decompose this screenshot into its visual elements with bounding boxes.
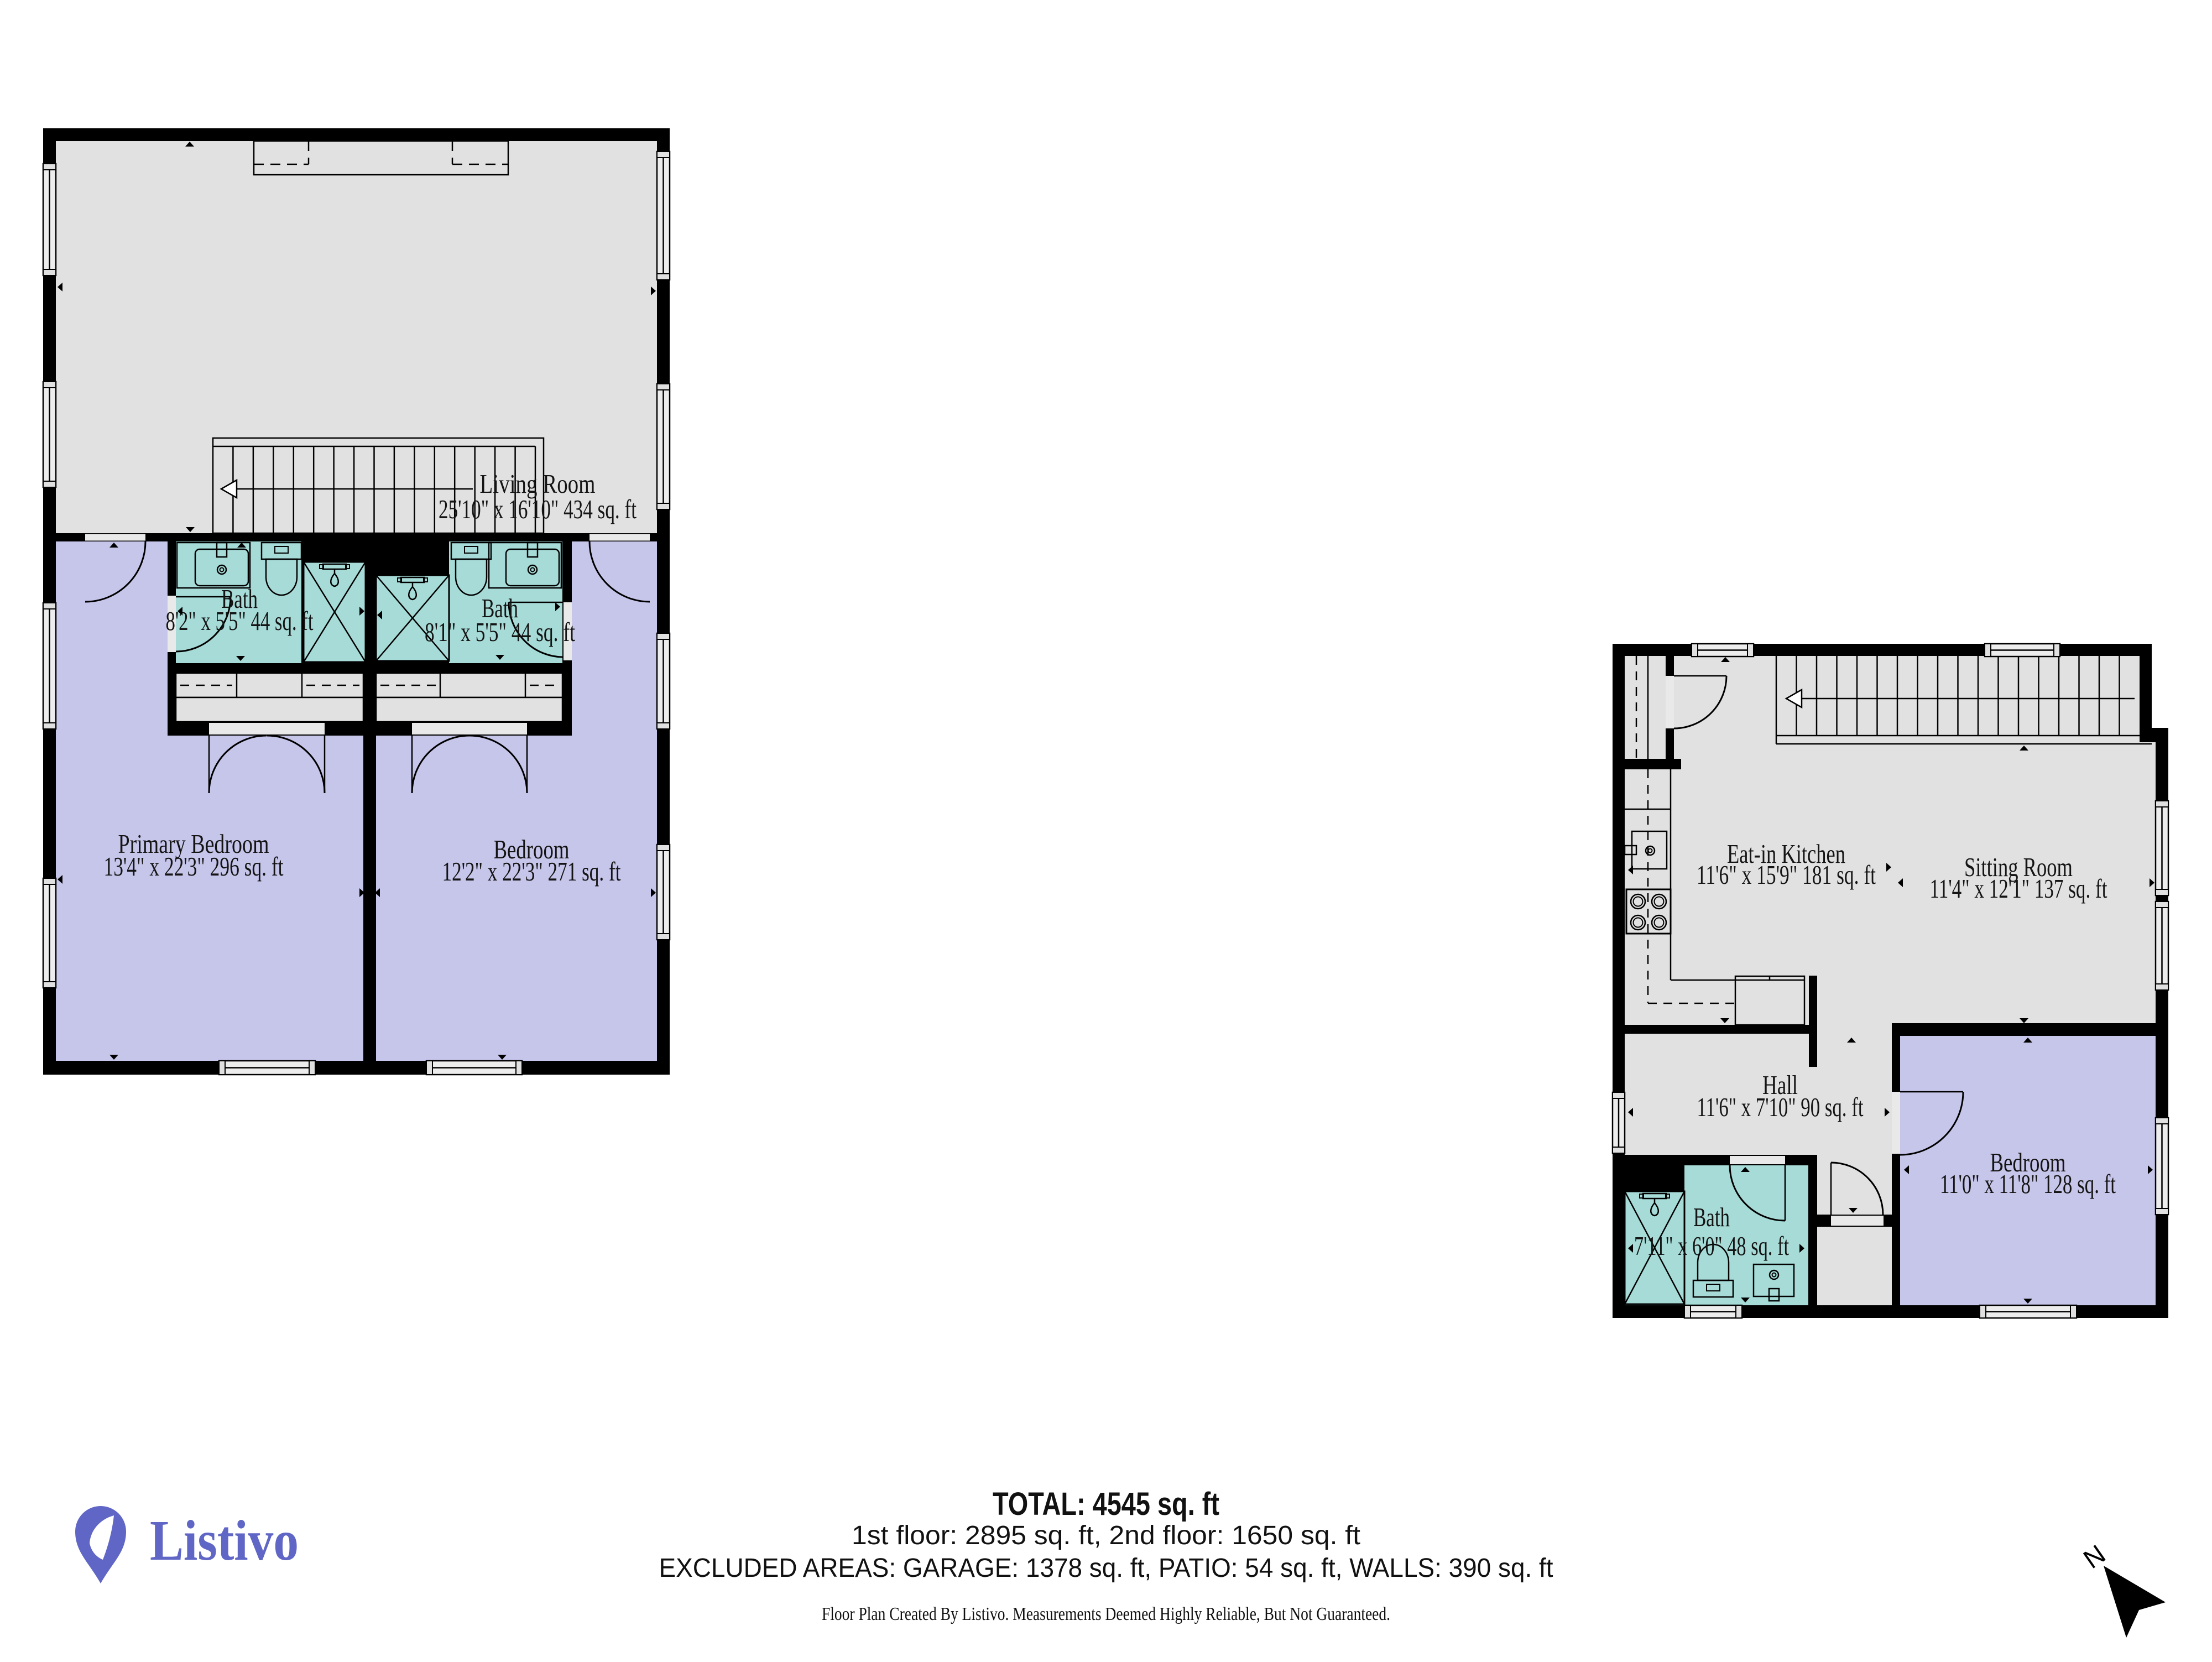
- svg-text:12'2" x 22'3" 271 sq. ft: 12'2" x 22'3" 271 sq. ft: [442, 856, 621, 887]
- svg-text:TOTAL: 4545 sq. ft: TOTAL: 4545 sq. ft: [993, 1486, 1219, 1522]
- svg-text:1st floor: 2895 sq. ft, 2nd fl: 1st floor: 2895 sq. ft, 2nd floor: 1650 …: [852, 1521, 1360, 1550]
- svg-text:Floor Plan Created By Listivo.: Floor Plan Created By Listivo. Measureme…: [822, 1604, 1390, 1624]
- svg-text:EXCLUDED AREAS: GARAGE: 1378 s: EXCLUDED AREAS: GARAGE: 1378 sq. ft, PAT…: [659, 1554, 1553, 1583]
- svg-text:Listivo: Listivo: [150, 1509, 299, 1572]
- svg-text:25'10" x 16'10" 434 sq. ft: 25'10" x 16'10" 434 sq. ft: [439, 494, 637, 524]
- svg-text:8'1" x 5'5" 44 sq. ft: 8'1" x 5'5" 44 sq. ft: [425, 617, 575, 647]
- svg-text:Bath: Bath: [1693, 1202, 1730, 1232]
- svg-text:11'6" x 15'9" 181 sq. ft: 11'6" x 15'9" 181 sq. ft: [1697, 859, 1876, 890]
- svg-text:11'6" x 7'10" 90 sq. ft: 11'6" x 7'10" 90 sq. ft: [1697, 1092, 1864, 1122]
- svg-text:11'4" x 12'1" 137 sq. ft: 11'4" x 12'1" 137 sq. ft: [1930, 873, 2107, 904]
- svg-text:13'4" x 22'3" 296 sq. ft: 13'4" x 22'3" 296 sq. ft: [104, 851, 284, 882]
- svg-text:8'2" x 5'5" 44 sq. ft: 8'2" x 5'5" 44 sq. ft: [166, 606, 314, 636]
- svg-text:11'0" x 11'8" 128 sq. ft: 11'0" x 11'8" 128 sq. ft: [1940, 1169, 2116, 1199]
- svg-text:7'11" x 6'0" 48 sq. ft: 7'11" x 6'0" 48 sq. ft: [1634, 1231, 1789, 1261]
